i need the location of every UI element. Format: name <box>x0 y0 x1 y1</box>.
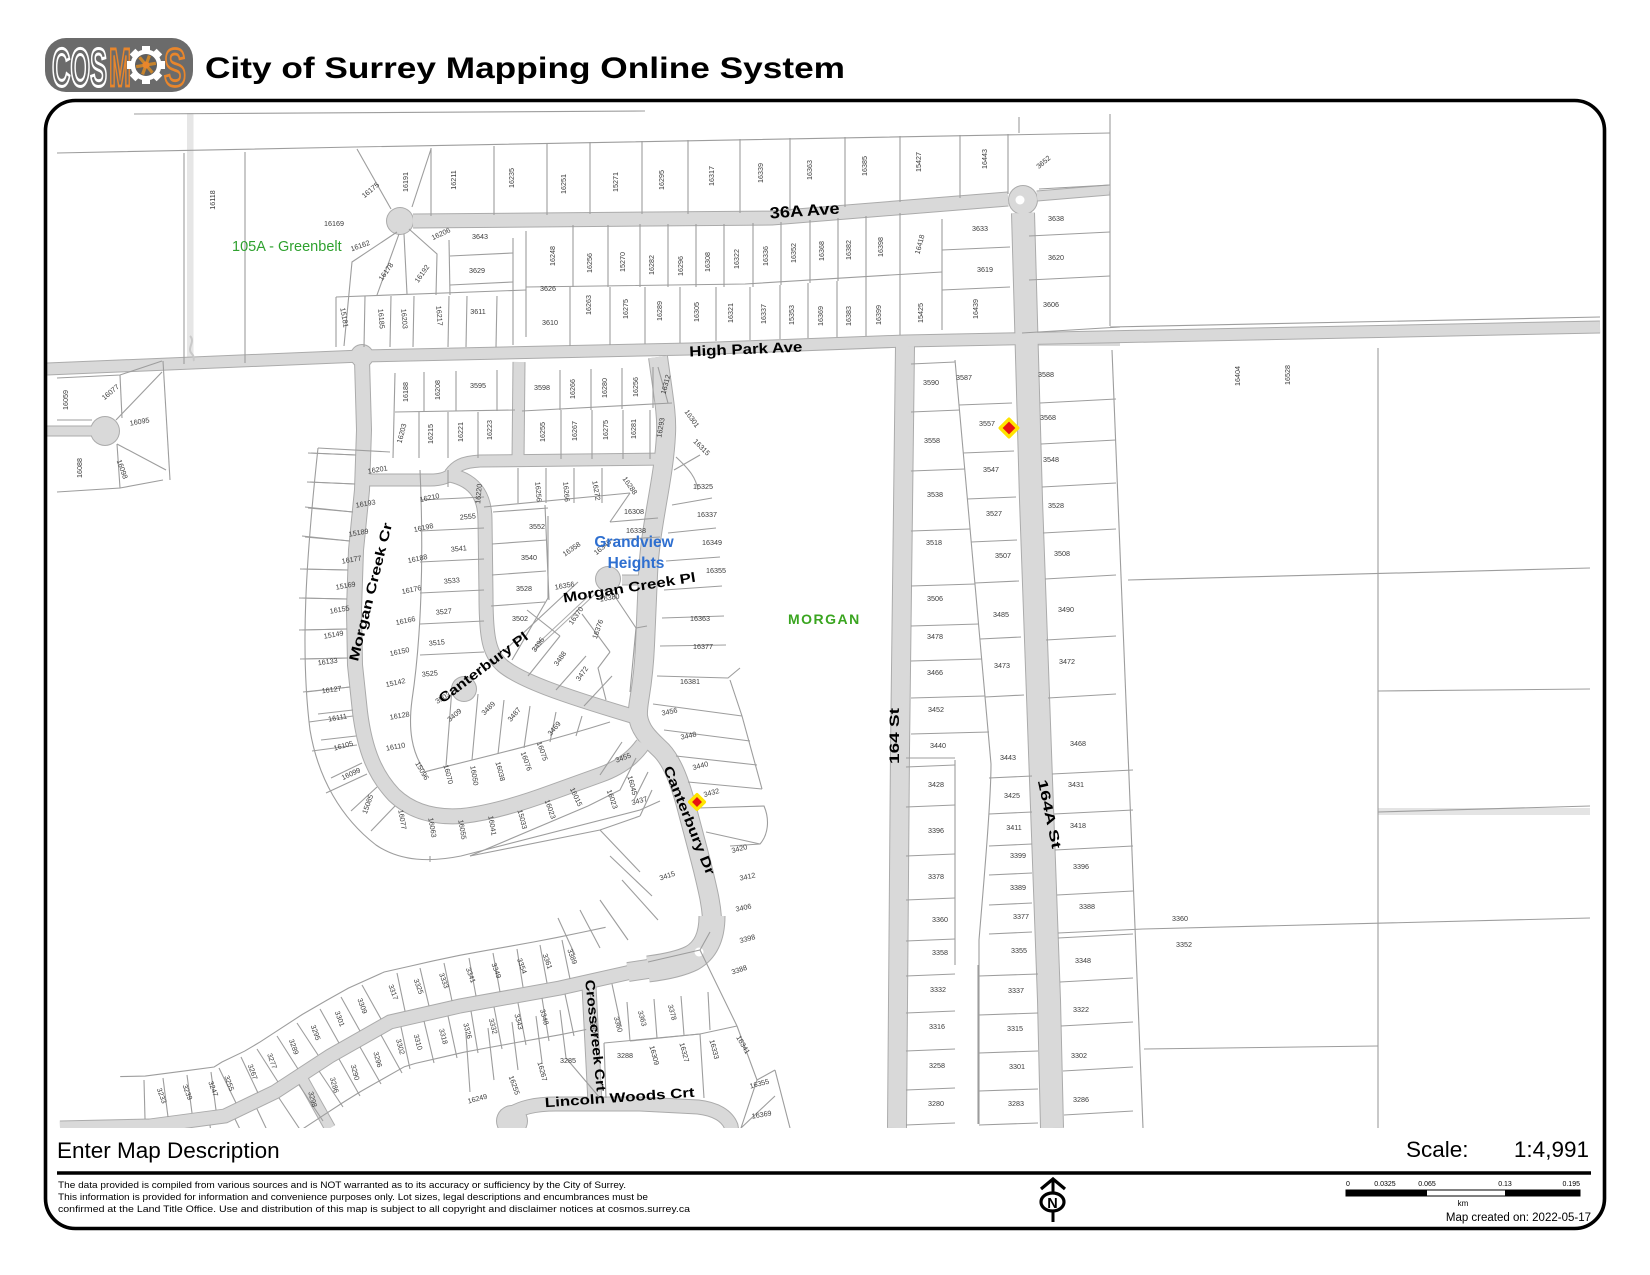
svg-text:3507: 3507 <box>995 551 1011 560</box>
svg-text:16349: 16349 <box>702 538 722 547</box>
svg-text:15325: 15325 <box>693 482 713 491</box>
svg-text:3568: 3568 <box>1040 413 1056 422</box>
svg-text:3396: 3396 <box>928 826 944 835</box>
svg-text:3418: 3418 <box>1070 821 1086 830</box>
svg-text:3558: 3558 <box>924 436 940 445</box>
svg-text:3315: 3315 <box>1007 1024 1023 1033</box>
svg-text:16317: 16317 <box>707 166 716 186</box>
svg-text:16377: 16377 <box>693 642 713 651</box>
svg-text:105A - Greenbelt: 105A - Greenbelt <box>232 239 342 255</box>
svg-text:3388: 3388 <box>1079 902 1095 911</box>
svg-text:This information is provided f: This information is provided for informa… <box>58 1191 648 1202</box>
svg-text:16355: 16355 <box>706 566 726 575</box>
svg-text:3280: 3280 <box>928 1099 944 1108</box>
svg-text:3611: 3611 <box>470 307 485 316</box>
svg-text:15427: 15427 <box>914 152 923 172</box>
svg-text:3587: 3587 <box>956 373 972 382</box>
svg-text:16215: 16215 <box>426 424 435 444</box>
svg-text:3620: 3620 <box>1048 253 1064 262</box>
svg-text:3348: 3348 <box>1075 956 1091 965</box>
svg-text:3389: 3389 <box>1010 883 1026 892</box>
svg-text:16266: 16266 <box>561 481 572 502</box>
svg-text:3638: 3638 <box>1048 214 1064 223</box>
svg-text:16369: 16369 <box>816 306 825 326</box>
svg-text:16363: 16363 <box>805 160 814 180</box>
svg-text:16308: 16308 <box>703 252 712 272</box>
svg-text:3643: 3643 <box>472 232 488 241</box>
svg-text:16368: 16368 <box>817 241 826 261</box>
svg-text:Heights: Heights <box>608 555 665 572</box>
svg-text:16220: 16220 <box>473 483 484 504</box>
svg-text:16439: 16439 <box>971 299 980 319</box>
svg-text:1:4,991: 1:4,991 <box>1514 1137 1589 1162</box>
svg-text:3286: 3286 <box>1073 1095 1089 1104</box>
svg-text:16256: 16256 <box>585 253 594 273</box>
svg-text:16235: 16235 <box>507 168 516 188</box>
svg-text:confirmed at the Land Title Of: confirmed at the Land Title Office. Use … <box>58 1203 691 1214</box>
svg-text:0.065: 0.065 <box>1418 1181 1436 1188</box>
svg-text:3528: 3528 <box>516 584 532 593</box>
svg-text:16059: 16059 <box>61 390 70 410</box>
svg-text:16217: 16217 <box>434 305 445 326</box>
svg-text:3506: 3506 <box>927 594 943 603</box>
svg-text:3557: 3557 <box>979 419 995 428</box>
svg-text:3548: 3548 <box>1043 455 1059 464</box>
svg-text:S: S <box>164 38 186 98</box>
svg-text:16383: 16383 <box>844 306 853 326</box>
svg-text:MORGAN: MORGAN <box>788 611 861 627</box>
svg-text:3540: 3540 <box>521 553 537 562</box>
svg-text:16211: 16211 <box>449 170 458 189</box>
svg-text:COS: COS <box>52 38 107 98</box>
svg-text:2555: 2555 <box>459 511 476 521</box>
svg-text:16185: 16185 <box>376 308 387 329</box>
svg-text:16337: 16337 <box>759 304 768 324</box>
svg-text:3472: 3472 <box>1059 657 1075 666</box>
svg-text:16339: 16339 <box>756 163 765 183</box>
svg-text:3527: 3527 <box>986 509 1002 518</box>
svg-text:16528: 16528 <box>1283 365 1292 385</box>
svg-text:16322: 16322 <box>732 249 741 269</box>
svg-text:3527: 3527 <box>435 606 452 616</box>
svg-text:km: km <box>1458 1199 1469 1208</box>
svg-text:16282: 16282 <box>647 255 656 275</box>
svg-text:3443: 3443 <box>1000 753 1016 762</box>
svg-text:16281: 16281 <box>629 419 638 439</box>
svg-text:3355: 3355 <box>1011 946 1027 955</box>
svg-text:3633: 3633 <box>972 224 988 233</box>
svg-text:3508: 3508 <box>1054 549 1070 558</box>
svg-text:3515: 3515 <box>428 637 445 647</box>
svg-text:16221: 16221 <box>456 422 465 442</box>
svg-text:3302: 3302 <box>1071 1051 1087 1060</box>
svg-text:0: 0 <box>1346 1181 1350 1188</box>
svg-text:16363: 16363 <box>690 614 710 623</box>
svg-text:3316: 3316 <box>929 1022 945 1031</box>
svg-text:16263: 16263 <box>584 295 593 315</box>
svg-text:16267: 16267 <box>570 421 579 441</box>
svg-text:3411: 3411 <box>1006 823 1021 832</box>
svg-text:3525: 3525 <box>421 668 438 678</box>
svg-text:3473: 3473 <box>994 661 1010 670</box>
svg-text:16188: 16188 <box>401 382 410 402</box>
svg-text:16385: 16385 <box>860 156 869 176</box>
svg-text:Enter Map Description: Enter Map Description <box>57 1138 280 1163</box>
svg-text:N: N <box>1047 1196 1057 1212</box>
svg-text:3629: 3629 <box>469 266 485 275</box>
svg-text:3285: 3285 <box>560 1056 576 1065</box>
svg-text:16337: 16337 <box>697 510 717 519</box>
svg-text:3595: 3595 <box>470 381 486 390</box>
svg-text:164 St: 164 St <box>887 707 902 764</box>
svg-text:3258: 3258 <box>929 1061 945 1070</box>
svg-text:16266: 16266 <box>568 379 577 399</box>
svg-text:15271: 15271 <box>611 172 620 192</box>
svg-text:16256: 16256 <box>533 481 544 502</box>
svg-text:3547: 3547 <box>983 465 999 474</box>
svg-text:3332: 3332 <box>930 985 946 994</box>
svg-text:16191: 16191 <box>401 172 410 192</box>
svg-text:3288: 3288 <box>617 1051 633 1060</box>
svg-text:16169: 16169 <box>324 219 344 228</box>
svg-text:3541: 3541 <box>450 543 467 553</box>
svg-text:16203: 16203 <box>399 308 410 329</box>
svg-text:15353: 15353 <box>787 305 796 325</box>
svg-text:3322: 3322 <box>1073 1005 1089 1014</box>
svg-text:3533: 3533 <box>443 575 460 585</box>
svg-text:3552: 3552 <box>529 522 545 531</box>
svg-text:16295: 16295 <box>657 170 666 190</box>
svg-text:3626: 3626 <box>540 284 556 293</box>
svg-text:16382: 16382 <box>844 240 853 260</box>
svg-text:16321: 16321 <box>726 303 735 323</box>
svg-text:16305: 16305 <box>692 302 701 322</box>
svg-text:3425: 3425 <box>1004 791 1020 800</box>
svg-text:3360: 3360 <box>1172 914 1188 923</box>
svg-text:3399: 3399 <box>1010 851 1026 860</box>
svg-text:3440: 3440 <box>930 741 946 750</box>
svg-text:3378: 3378 <box>928 872 944 881</box>
svg-text:16275: 16275 <box>601 420 610 440</box>
svg-text:3377: 3377 <box>1013 912 1029 921</box>
svg-text:16399: 16399 <box>874 305 883 325</box>
svg-text:3588: 3588 <box>1038 370 1054 379</box>
svg-text:Grandview: Grandview <box>594 534 674 551</box>
svg-text:The data provided is compiled: The data provided is compiled from vario… <box>58 1179 626 1190</box>
svg-text:16088: 16088 <box>75 458 84 478</box>
svg-text:3606: 3606 <box>1043 300 1059 309</box>
svg-text:15425: 15425 <box>916 303 925 323</box>
svg-text:16256: 16256 <box>631 377 640 397</box>
svg-text:3358: 3358 <box>932 948 948 957</box>
svg-text:0.0325: 0.0325 <box>1374 1181 1396 1188</box>
svg-text:3466: 3466 <box>927 668 943 677</box>
svg-text:16296: 16296 <box>676 256 685 276</box>
svg-text:15270: 15270 <box>618 252 627 272</box>
svg-text:0.13: 0.13 <box>1498 1181 1512 1188</box>
svg-text:16251: 16251 <box>559 174 568 194</box>
svg-text:16404: 16404 <box>1233 366 1242 386</box>
svg-text:3452: 3452 <box>928 705 944 714</box>
svg-text:16336: 16336 <box>761 246 770 266</box>
svg-text:3610: 3610 <box>542 318 558 327</box>
svg-text:16398: 16398 <box>876 237 885 257</box>
svg-text:3538: 3538 <box>927 490 943 499</box>
svg-text:16248: 16248 <box>548 246 557 266</box>
svg-text:3598: 3598 <box>534 383 550 392</box>
svg-text:City of Surrey Mapping Online: City of Surrey Mapping Online System <box>205 52 845 85</box>
svg-text:16275: 16275 <box>621 299 630 319</box>
svg-text:3396: 3396 <box>1073 862 1089 871</box>
svg-text:16289: 16289 <box>655 301 664 321</box>
svg-text:3528: 3528 <box>1048 501 1064 510</box>
svg-text:3468: 3468 <box>1070 739 1086 748</box>
svg-text:0.195: 0.195 <box>1562 1181 1580 1188</box>
svg-text:3478: 3478 <box>927 632 943 641</box>
svg-text:3518: 3518 <box>926 538 942 547</box>
svg-text:Map created on: 2022-05-17: Map created on: 2022-05-17 <box>1446 1212 1591 1224</box>
svg-text:3590: 3590 <box>923 378 939 387</box>
svg-text:3283: 3283 <box>1008 1099 1024 1108</box>
svg-text:3502: 3502 <box>512 614 528 623</box>
svg-text:16255: 16255 <box>538 422 547 442</box>
svg-text:3428: 3428 <box>928 780 944 789</box>
svg-text:16443: 16443 <box>980 149 989 169</box>
svg-text:16308: 16308 <box>624 507 644 516</box>
svg-text:16118: 16118 <box>208 190 217 209</box>
svg-text:3352: 3352 <box>1176 940 1192 949</box>
svg-text:3485: 3485 <box>993 610 1009 619</box>
svg-text:16208: 16208 <box>433 380 442 400</box>
svg-text:16352: 16352 <box>789 243 798 263</box>
svg-text:3301: 3301 <box>1009 1062 1025 1071</box>
svg-text:16280: 16280 <box>600 378 609 398</box>
svg-text:3360: 3360 <box>932 915 948 924</box>
svg-text:3337: 3337 <box>1008 986 1024 995</box>
svg-text:3490: 3490 <box>1058 605 1074 614</box>
svg-text:16223: 16223 <box>485 420 494 440</box>
svg-text:3431: 3431 <box>1068 780 1084 789</box>
svg-text:Scale:: Scale: <box>1406 1137 1469 1162</box>
svg-text:16381: 16381 <box>680 677 700 686</box>
svg-text:3619: 3619 <box>977 265 993 274</box>
